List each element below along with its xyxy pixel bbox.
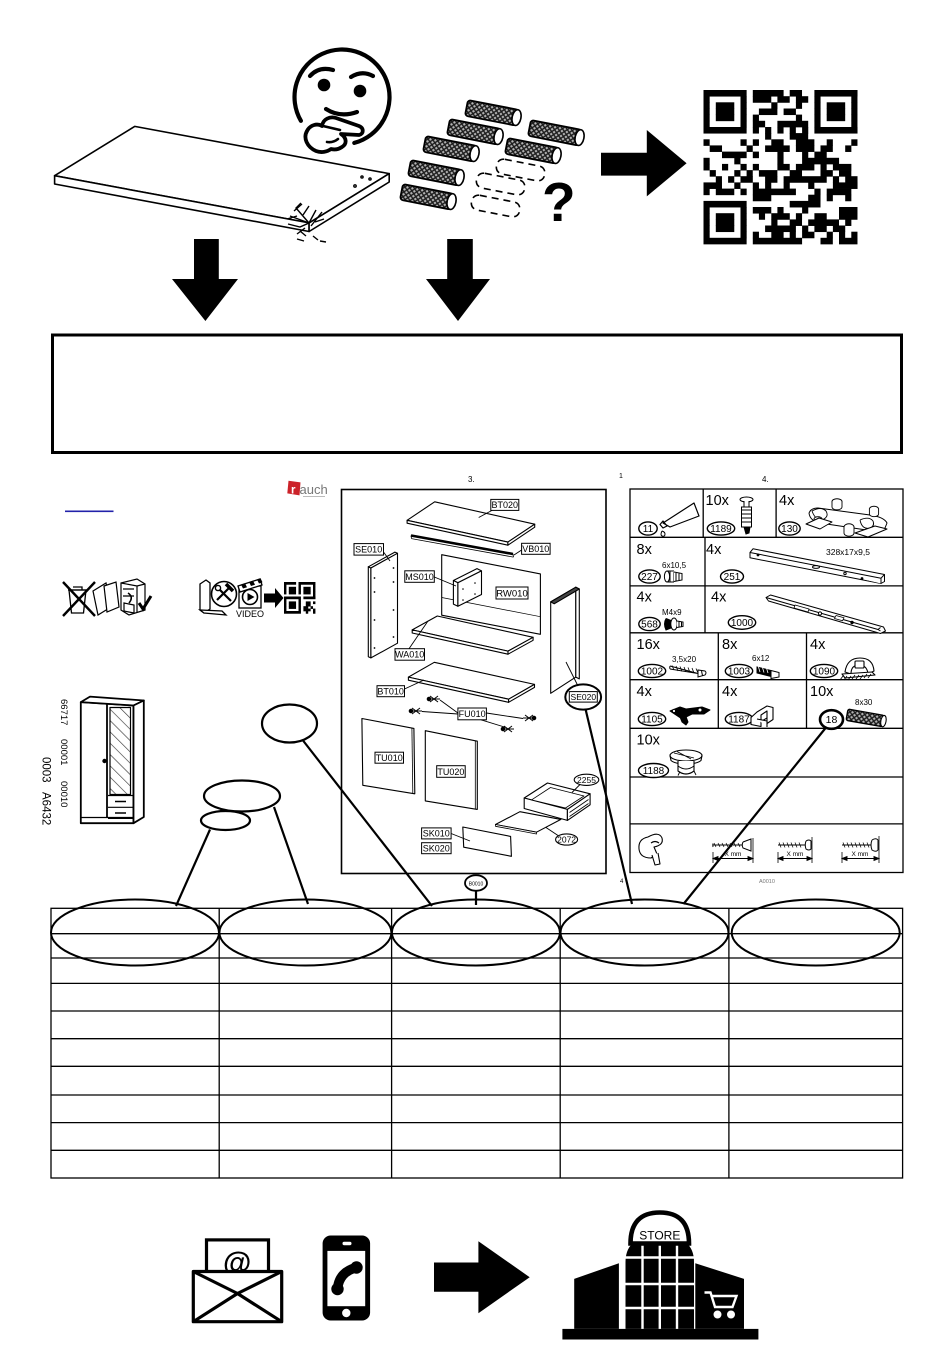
svg-text:3.: 3. (468, 475, 475, 484)
svg-text:10x: 10x (706, 493, 730, 509)
svg-text:SK010: SK010 (423, 829, 450, 839)
svg-text:66717: 66717 (58, 699, 69, 725)
svg-text:4x: 4x (711, 590, 727, 606)
svg-text:18: 18 (826, 714, 838, 726)
svg-text:X mm: X mm (725, 851, 742, 858)
svg-text:B0010: B0010 (469, 882, 484, 888)
svg-text:X mm: X mm (852, 851, 869, 858)
svg-text:BT010: BT010 (377, 686, 404, 696)
svg-text:4x: 4x (810, 637, 826, 653)
svg-text:4x: 4x (637, 590, 653, 606)
svg-text:1189: 1189 (710, 524, 732, 535)
svg-text:11: 11 (643, 524, 654, 535)
svg-text:6x10,5: 6x10,5 (662, 561, 687, 570)
svg-text:1105: 1105 (641, 714, 663, 725)
svg-text:00010: 00010 (58, 781, 69, 807)
svg-text:BT020: BT020 (492, 500, 519, 510)
svg-text:TU010: TU010 (376, 753, 403, 763)
svg-text:1090: 1090 (813, 666, 836, 677)
svg-text:4x: 4x (706, 542, 722, 558)
svg-text:4.: 4. (762, 475, 769, 484)
svg-text:227: 227 (641, 572, 658, 583)
svg-text:00001: 00001 (58, 739, 69, 765)
svg-text:4x: 4x (637, 684, 653, 700)
svg-text:auch: auch (300, 482, 328, 497)
svg-text:568: 568 (641, 619, 658, 630)
svg-text:TU020: TU020 (437, 767, 464, 777)
svg-text:SK020: SK020 (423, 843, 450, 853)
svg-text:SE010: SE010 (355, 545, 382, 555)
svg-text:6x12: 6x12 (752, 654, 770, 663)
svg-text:4x: 4x (722, 684, 738, 700)
svg-text:8x: 8x (637, 542, 653, 558)
svg-text:r: r (291, 485, 296, 497)
svg-text:1187: 1187 (728, 714, 750, 725)
svg-text:1000: 1000 (731, 618, 754, 629)
svg-text:?: ? (542, 171, 576, 233)
svg-text:VIDEO: VIDEO (236, 609, 264, 619)
svg-text:4x: 4x (779, 493, 795, 509)
svg-text:8x30: 8x30 (855, 698, 873, 707)
svg-text:M4x9: M4x9 (662, 608, 682, 617)
svg-text:VB010: VB010 (522, 544, 549, 554)
svg-text:X mm: X mm (787, 851, 804, 858)
svg-text:0003: 0003 (40, 757, 52, 783)
svg-text:MS010: MS010 (405, 572, 434, 582)
svg-text:10x: 10x (637, 733, 661, 749)
svg-text:2072: 2072 (557, 835, 576, 845)
svg-text:251: 251 (724, 572, 741, 583)
svg-text:WA010: WA010 (395, 650, 424, 660)
svg-text:16x: 16x (637, 637, 661, 653)
svg-text:A0010: A0010 (759, 879, 775, 885)
svg-text:10x: 10x (810, 684, 834, 700)
svg-text:RW010: RW010 (496, 588, 528, 599)
svg-text:A6432: A6432 (40, 792, 52, 825)
svg-text:1: 1 (619, 473, 623, 480)
svg-text:STORE: STORE (639, 1229, 680, 1243)
svg-text:1002: 1002 (641, 666, 664, 677)
svg-text:328x17x9,5: 328x17x9,5 (826, 547, 870, 557)
svg-text:3,5x20: 3,5x20 (672, 655, 697, 664)
svg-text:SE020: SE020 (571, 692, 597, 702)
svg-text:2255: 2255 (577, 775, 596, 785)
svg-text:1003: 1003 (728, 666, 751, 677)
svg-text:8x: 8x (722, 637, 738, 653)
svg-text:1188: 1188 (643, 766, 665, 777)
svg-text:130: 130 (781, 524, 798, 535)
svg-text:FU010: FU010 (459, 709, 486, 719)
